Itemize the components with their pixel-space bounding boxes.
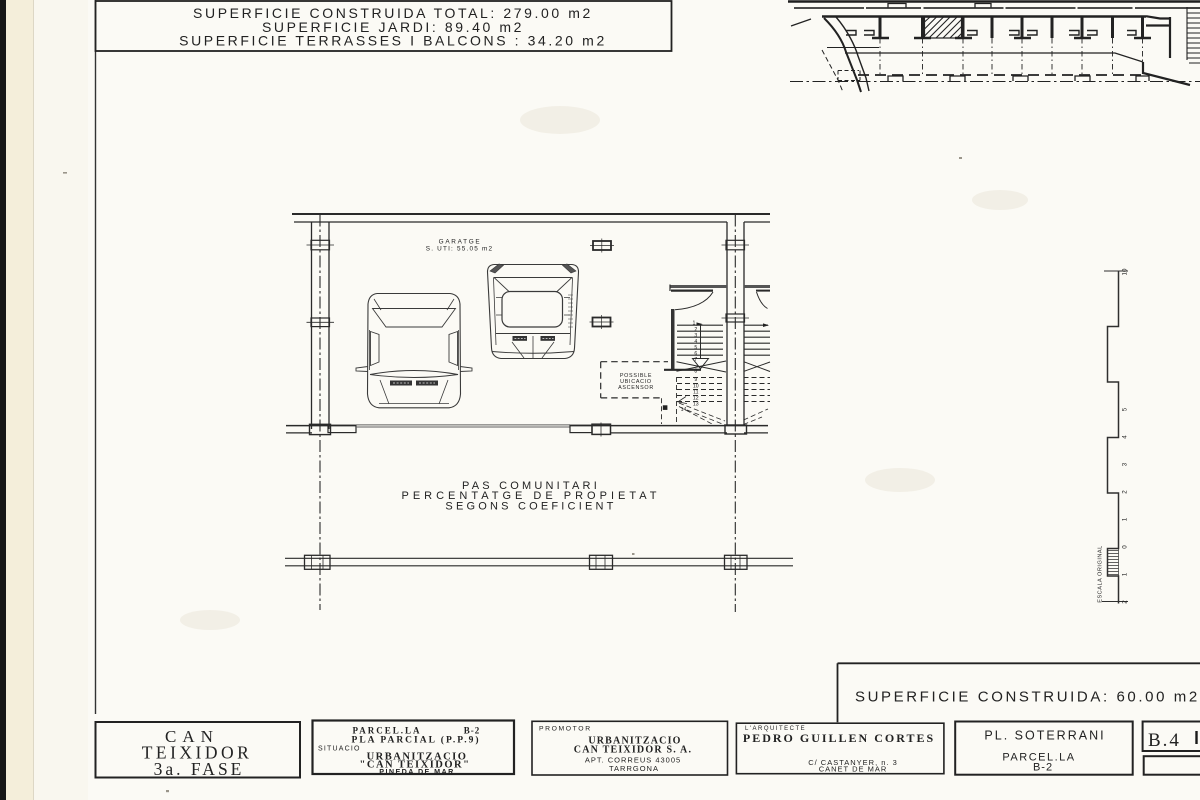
svg-text:2: 2: [1122, 490, 1129, 494]
svg-text:TARRGONA: TARRGONA: [609, 764, 659, 773]
svg-text:14: 14: [681, 407, 687, 413]
svg-text:8: 8: [694, 369, 697, 375]
svg-text:2: 2: [1122, 600, 1129, 604]
svg-text:ASCENSOR: ASCENSOR: [618, 385, 654, 391]
svg-text:PEDRO GUILLEN CORTES: PEDRO GUILLEN CORTES: [743, 731, 935, 745]
svg-text:B-2: B-2: [464, 726, 481, 736]
svg-text:1: 1: [1122, 572, 1129, 576]
svg-text:B.4: B.4: [1148, 730, 1181, 751]
svg-text:PARCEL.LA: PARCEL.LA: [352, 726, 421, 736]
svg-text:9: 9: [694, 377, 697, 383]
svg-text:PL. SOTERRANI: PL. SOTERRANI: [984, 729, 1105, 743]
svg-text:7: 7: [694, 357, 697, 363]
svg-text:CAN TEIXIDOR S. A.: CAN TEIXIDOR S. A.: [574, 745, 692, 756]
svg-text:0: 0: [1122, 545, 1129, 549]
svg-text:SEGONS COEFICIENT: SEGONS COEFICIENT: [445, 501, 616, 513]
svg-text:SUPERFICIE CONSTRUIDA: 60.00 m: SUPERFICIE CONSTRUIDA: 60.00 m2: [855, 689, 1200, 706]
svg-text:SUPERFICIE TERRASSES I BALCONS: SUPERFICIE TERRASSES I BALCONS : 34.20 m…: [179, 32, 607, 48]
svg-text:B-2: B-2: [1033, 762, 1053, 774]
svg-text:SITUACIO: SITUACIO: [318, 746, 361, 753]
svg-text:ESCALA ORIGINAL: ESCALA ORIGINAL: [1098, 545, 1104, 603]
svg-text:1: 1: [1122, 517, 1129, 521]
svg-text:S. UTI: 55.05 m2: S. UTI: 55.05 m2: [426, 246, 494, 253]
svg-text:3a. FASE: 3a. FASE: [154, 759, 245, 779]
svg-text:5: 5: [1122, 407, 1129, 411]
svg-text:4: 4: [1122, 435, 1129, 439]
svg-text:13: 13: [693, 401, 699, 407]
svg-text:1: 1: [693, 321, 696, 327]
svg-text:PINEDA DE MAR: PINEDA DE MAR: [379, 767, 454, 776]
svg-text:PROMOTOR: PROMOTOR: [539, 726, 592, 733]
svg-text:10: 10: [1122, 268, 1129, 275]
svg-text:CANET DE MAR: CANET DE MAR: [819, 765, 888, 774]
svg-text:PLA PARCIAL (P.P.9): PLA PARCIAL (P.P.9): [352, 735, 481, 746]
svg-text:3: 3: [1122, 462, 1129, 466]
